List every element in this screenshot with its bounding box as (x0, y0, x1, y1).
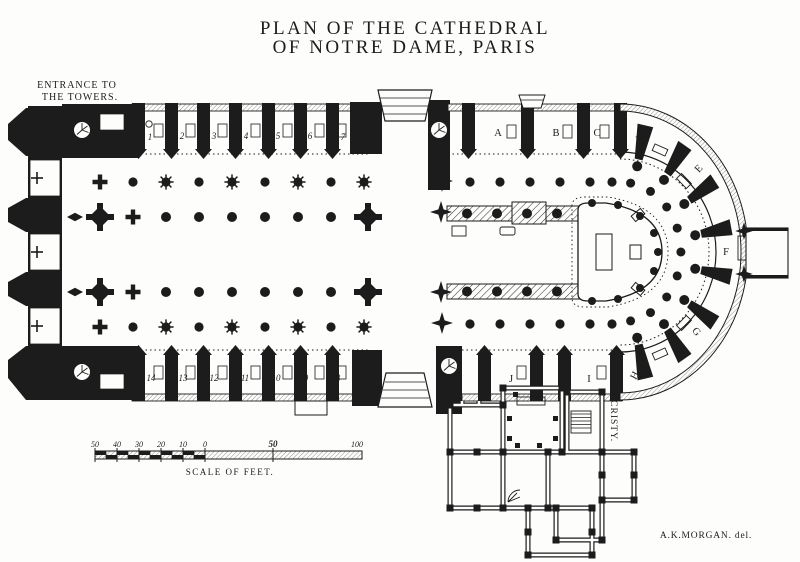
chapel-number: 8 (336, 373, 341, 383)
scale-tick: 40 (113, 440, 121, 449)
plan-sheet: PLAN OF THE CATHEDRAL OF NOTRE DAME, PAR… (0, 0, 800, 562)
chapel-number: 7 (341, 132, 346, 142)
northwest-tower (62, 104, 138, 158)
entrance-label-line2: THE TOWERS. (42, 92, 118, 103)
nave-north-chapels: 1 2 3 4 5 6 7 (130, 103, 370, 159)
scale-tick: 20 (157, 440, 165, 449)
chapel-letter: B (552, 128, 559, 139)
chapel-number: 2 (180, 131, 185, 141)
title-block: PLAN OF THE CATHEDRAL OF NOTRE DAME, PAR… (260, 18, 550, 58)
chapel-number: 10 (272, 373, 282, 383)
chapel-number: 14 (147, 373, 157, 383)
chapel-number: 12 (210, 373, 220, 383)
chapel-letter: F (723, 247, 729, 258)
scale-tick: 0 (203, 440, 207, 449)
page-title-line1: PLAN OF THE CATHEDRAL (260, 18, 550, 39)
chapel-letter: I (587, 374, 591, 385)
scale-tick: 10 (179, 440, 187, 449)
chapel-letter: A (494, 128, 502, 139)
sacristy-stairs (571, 411, 591, 433)
chapel-number: 1 (148, 132, 153, 142)
choir-stalls (430, 201, 591, 303)
chapel-letter: E (693, 163, 705, 175)
scale-tick: 30 (134, 440, 143, 449)
chapel-number: 6 (308, 131, 313, 141)
chapel-letter: G (689, 326, 703, 339)
north-portal-steps (378, 90, 432, 121)
scale-tick-end: 100 (351, 440, 363, 449)
scale-tick-mid: 50 (269, 439, 279, 449)
north-transept (350, 90, 453, 192)
chapel-number: 13 (179, 373, 189, 383)
south-portal-steps (378, 373, 432, 407)
chapel-letter: J (509, 374, 513, 385)
south-chapel-piers (130, 345, 341, 401)
chapel-number: 3 (211, 131, 217, 141)
scale-bar: 50 40 30 20 10 0 50 100 SCALE OF FEET. (91, 439, 363, 477)
chapel-number: 11 (241, 373, 249, 383)
sanctuary (572, 197, 668, 307)
entrance-label-line1: ENTRANCE TO (37, 80, 117, 91)
entrance-to-towers-label: ENTRANCE TO THE TOWERS. (37, 80, 118, 103)
nave-south-chapels: 14 13 12 11 10 9 8 (130, 345, 370, 415)
delineator-credit: A.K.MORGAN. del. (660, 531, 752, 541)
nave-columns (67, 174, 382, 334)
choir-north-chapels: A B C D (448, 95, 646, 159)
chapel-number: 9 (304, 373, 309, 383)
west-portals (30, 160, 60, 344)
sacristy: SACRISTY. (447, 385, 638, 559)
southwest-tower (62, 346, 138, 400)
chapel-number: 4 (244, 131, 249, 141)
sacristy-label: SACRISTY. (608, 386, 618, 442)
chapel-number: 5 (276, 131, 281, 141)
scale-tick: 50 (91, 440, 99, 449)
west-front-and-towers (8, 104, 138, 400)
chapel-letter: C (593, 128, 600, 139)
page-title-line2: OF NOTRE DAME, PARIS (273, 37, 538, 58)
cathedral-floor-plan: PLAN OF THE CATHEDRAL OF NOTRE DAME, PAR… (0, 0, 800, 562)
spiral-stair-fan (508, 490, 520, 502)
scale-caption: SCALE OF FEET. (186, 467, 275, 477)
